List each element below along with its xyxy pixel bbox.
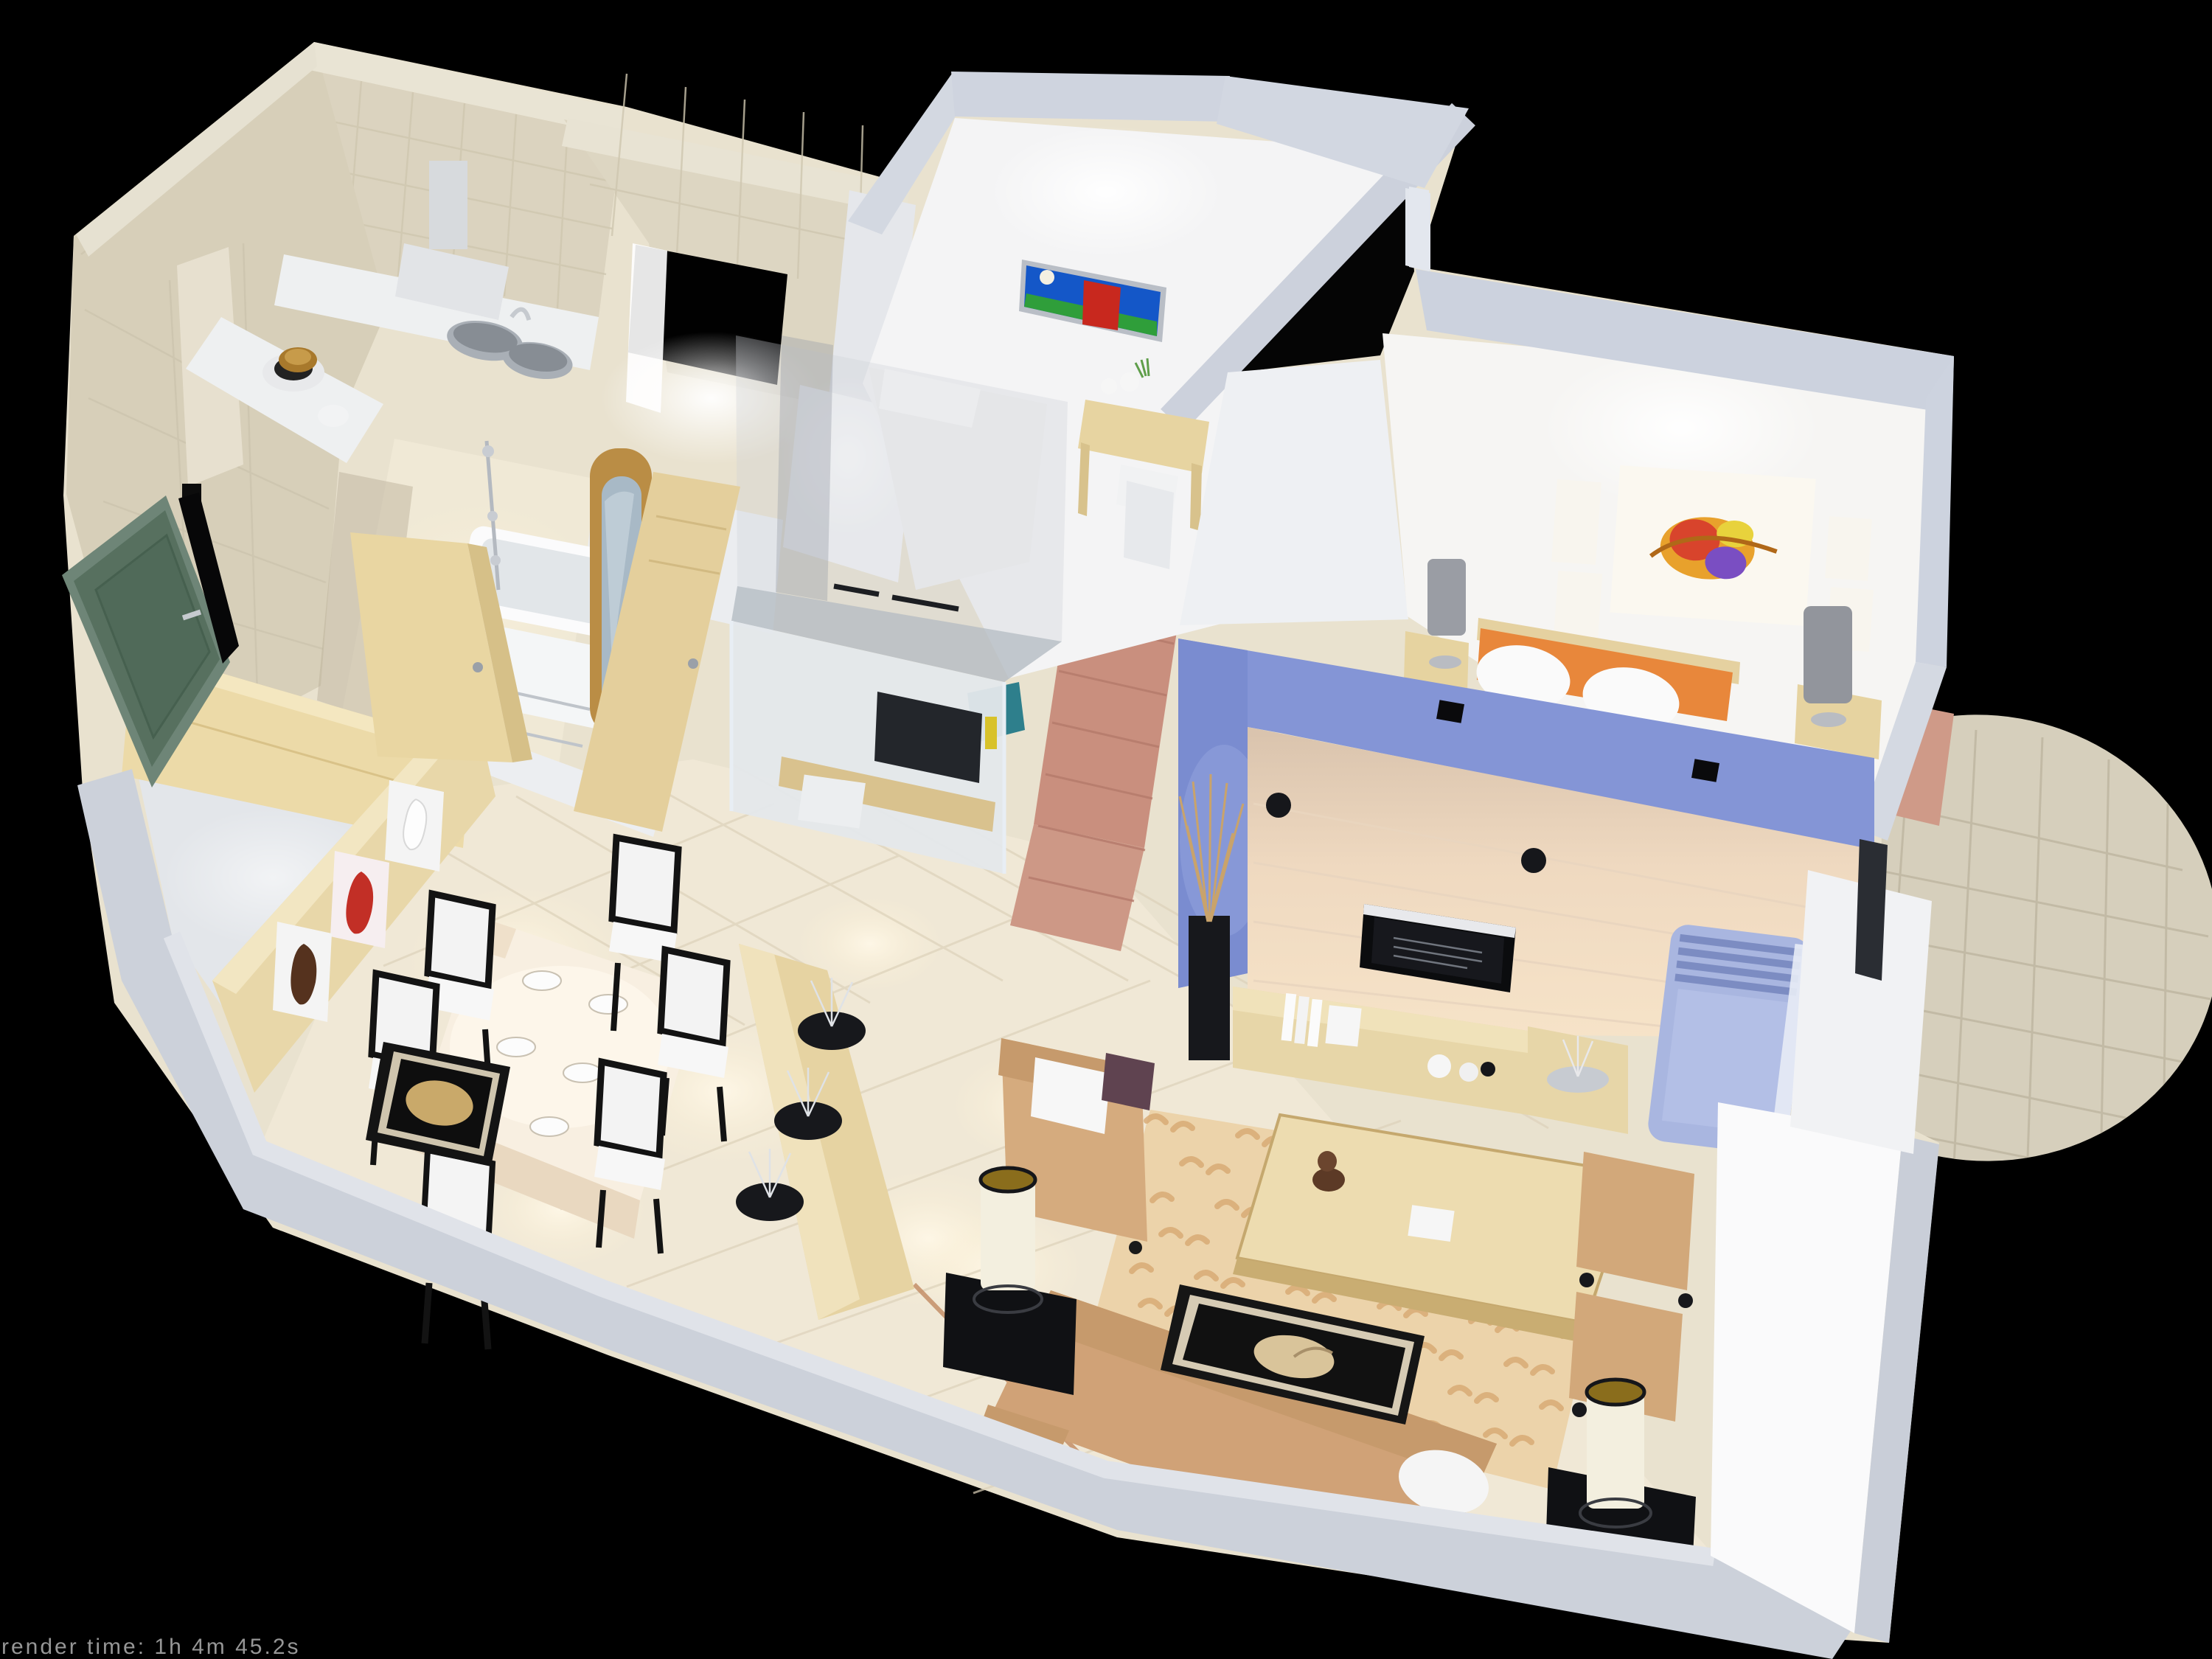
- svg-text:render time: 1h 4m 45.2s: render time: 1h 4m 45.2s: [1, 1635, 301, 1659]
